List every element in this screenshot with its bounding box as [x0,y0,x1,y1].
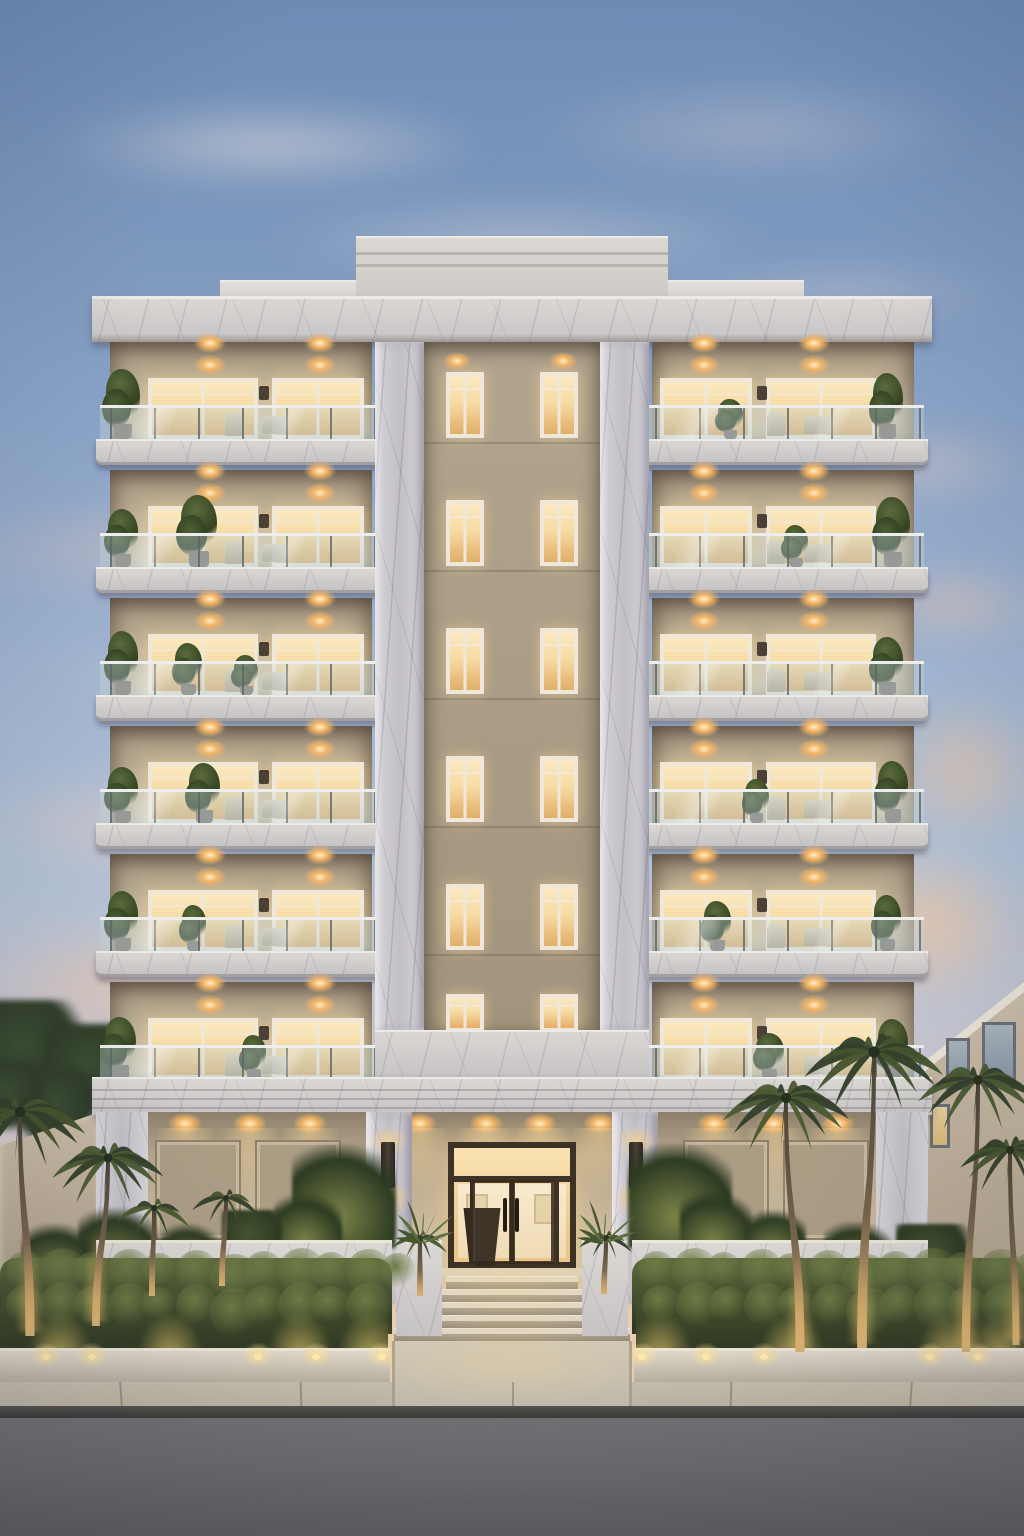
palm-frond [209,1198,226,1221]
palm-trunk-uplight [848,1258,876,1344]
palm-frond [606,1237,632,1252]
palm-trunk-uplight [952,1262,980,1348]
palm-frond [226,1197,259,1216]
palm-frond [154,1207,190,1228]
palm-trunk-uplight [786,1262,814,1348]
dusk-condo-building-photo [0,0,1024,1536]
palm-tree [117,1198,190,1296]
palm-trunk-uplight [16,1246,44,1332]
palm-trunk-uplight [82,1236,110,1322]
palm-tree [192,1189,259,1286]
agave-plant [395,1200,454,1244]
palm-frond [136,1208,154,1233]
agave-plant [577,1200,636,1244]
palm-trunk-uplight [1002,1255,1024,1341]
palm-tree [392,1231,447,1296]
